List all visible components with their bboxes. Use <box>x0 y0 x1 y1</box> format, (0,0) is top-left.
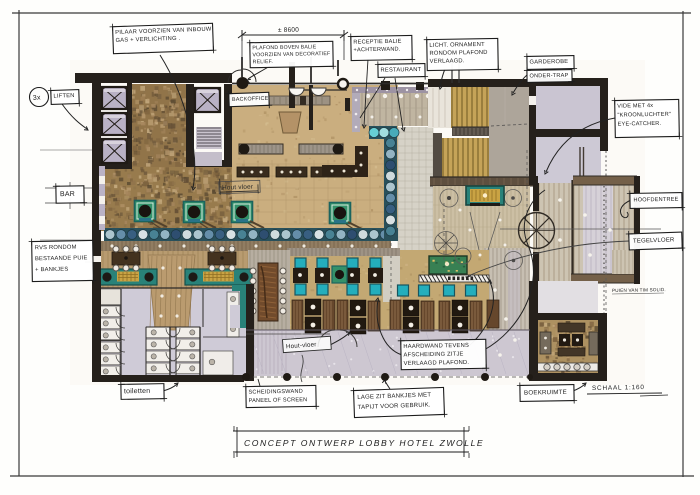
svg-text:Hout vloer: Hout vloer <box>222 184 254 192</box>
svg-text:CONCEPT ONTWERP LOBBY HOTEL: CONCEPT ONTWERP LOBBY HOTEL ZWOLLE <box>244 438 484 448</box>
svg-text:VIDE MET 4x: VIDE MET 4x <box>617 103 653 110</box>
svg-text:HAARDWAND TEVENS: HAARDWAND TEVENS <box>403 343 469 350</box>
svg-text:RVS RONDOM: RVS RONDOM <box>35 245 77 252</box>
svg-text:AFSCHEIDING ZITJE: AFSCHEIDING ZITJE <box>403 351 463 358</box>
svg-text:ONDER-TRAP: ONDER-TRAP <box>529 73 568 80</box>
svg-text:LIFTEN: LIFTEN <box>53 93 74 100</box>
svg-text:SCHEIDINGSWAND: SCHEIDINGSWAND <box>248 389 303 396</box>
svg-text:+ BANKJES: + BANKJES <box>35 267 68 274</box>
svg-text:RONDOM PLAFOND: RONDOM PLAFOND <box>429 50 487 57</box>
svg-text:PLAFOND BOVEN BALIE: PLAFOND BOVEN BALIE <box>252 44 316 51</box>
svg-text:BOEKRUIMTE: BOEKRUIMTE <box>524 389 567 397</box>
svg-text:EYE-CATCHER.: EYE-CATCHER. <box>618 121 662 128</box>
svg-text:± 8600: ± 8600 <box>278 27 299 34</box>
svg-text:PANEEL OF SCREEN: PANEEL OF SCREEN <box>249 397 308 404</box>
svg-text:LICHT. ORNAMENT: LICHT. ORNAMENT <box>429 42 485 49</box>
svg-text:toiletten: toiletten <box>124 388 150 395</box>
svg-text:BACKOFFICE: BACKOFFICE <box>232 96 269 103</box>
svg-text:PUIEN VAN TIM SOLID.: PUIEN VAN TIM SOLID. <box>612 287 666 293</box>
svg-text:BESTAANDE PUIE: BESTAANDE PUIE <box>35 255 88 262</box>
svg-text:BAR: BAR <box>60 191 75 198</box>
svg-text:SCHAAL 1:160: SCHAAL 1:160 <box>592 384 645 392</box>
svg-text:VERLAAGD.: VERLAAGD. <box>430 58 465 65</box>
svg-text:"KROONLUCHTER": "KROONLUCHTER" <box>617 112 671 119</box>
svg-text:HOOFDENTREE: HOOFDENTREE <box>633 197 678 204</box>
svg-text:3x: 3x <box>33 94 42 102</box>
svg-text:RESTAURANT: RESTAURANT <box>380 67 421 74</box>
svg-text:RELIEF.: RELIEF. <box>253 59 274 65</box>
svg-text:+ACHTERWAND.: +ACHTERWAND. <box>353 47 400 54</box>
svg-text:GARDEROBE: GARDEROBE <box>529 59 568 66</box>
svg-text:RECEPTIE BALIE: RECEPTIE BALIE <box>353 39 401 46</box>
svg-text:VERLAAGD PLAFOND.: VERLAAGD PLAFOND. <box>404 360 470 367</box>
